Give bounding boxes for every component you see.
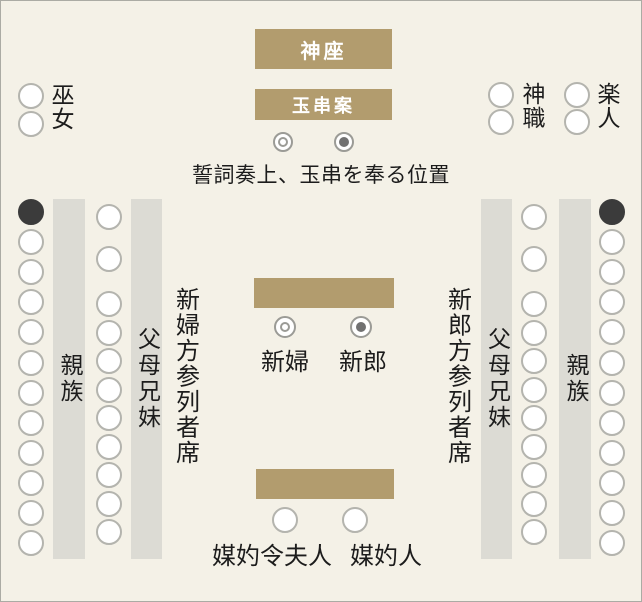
seat-matchmaker-wife (272, 507, 298, 533)
bride-position-marker (273, 132, 293, 152)
miko-label: 巫女 (43, 83, 77, 131)
seat-right-relatives (599, 229, 625, 255)
relatives-bar-left-label: 親族 (52, 353, 86, 405)
matchmaker-table (256, 469, 394, 499)
seat-right-parents (521, 291, 547, 317)
bride-marker (274, 316, 296, 338)
groom-label: 新郎 (339, 342, 387, 377)
parents-siblings-bar-right-label: 父母兄妹 (480, 327, 514, 431)
seat-right-relatives (599, 259, 625, 285)
tamagushi-table: 玉串案 (255, 89, 392, 120)
seat-right-relatives (599, 530, 625, 556)
groom-marker (350, 316, 372, 338)
matchmaker-wife-label: 媒妁令夫人 (212, 536, 332, 571)
seat-right-parents (521, 462, 547, 488)
seat-matchmaker (342, 507, 368, 533)
seat-left-parents (96, 519, 122, 545)
seat-right-relatives (599, 410, 625, 436)
seat-right-parents (521, 348, 547, 374)
seat-right-relatives (599, 500, 625, 526)
bride-side-title: 新婦方参列者席 (169, 287, 204, 466)
seat-left-parents (96, 405, 122, 431)
bride-label: 新婦 (261, 342, 309, 377)
relatives-bar-right: 親族 (559, 199, 591, 559)
seat-left-parents (96, 246, 122, 272)
seat-left-parents (96, 348, 122, 374)
seat-left-parents (96, 434, 122, 460)
kamiza-table: 神座 (255, 29, 392, 69)
relatives-bar-right-label: 親族 (558, 353, 592, 405)
seat-left-parents (96, 491, 122, 517)
seat-left-relatives (18, 350, 44, 376)
seat-right-parents (521, 320, 547, 346)
seat-left-relatives (18, 289, 44, 315)
seat-miko (18, 111, 44, 137)
seat-left-parents (96, 462, 122, 488)
seat-gakunin (564, 109, 590, 135)
groom-position-marker (334, 132, 354, 152)
parents-siblings-bar-right: 父母兄妹 (481, 199, 512, 559)
seat-left-parents (96, 377, 122, 403)
seat-left-relatives (18, 530, 44, 556)
parents-siblings-bar-left: 父母兄妹 (131, 199, 162, 559)
seat-shinshoku (488, 82, 514, 108)
seat-miko (18, 83, 44, 109)
groom-marker-inner-icon (356, 322, 366, 332)
seat-left-relatives (18, 470, 44, 496)
seat-left-relatives (18, 410, 44, 436)
seat-right-parents (521, 519, 547, 545)
seat-right-relatives (599, 440, 625, 466)
seat-left-relatives (18, 380, 44, 406)
seat-right-parents (521, 246, 547, 272)
groom-side-title: 新郎方参列者席 (441, 287, 476, 466)
seat-right-parents (521, 405, 547, 431)
bride-marker-inner-icon (280, 322, 290, 332)
seat-left-parents (96, 291, 122, 317)
shinshoku-label: 神職 (514, 82, 548, 130)
seat-left-relatives (18, 229, 44, 255)
seat-right-relatives (599, 289, 625, 315)
seat-right-relatives (599, 350, 625, 376)
seat-shinshoku (488, 109, 514, 135)
matchmaker-label: 媒妁人 (350, 536, 422, 571)
seat-right-relatives (599, 319, 625, 345)
relatives-bar-left: 親族 (53, 199, 85, 559)
seat-left-parents (96, 204, 122, 230)
seat-left-relatives (18, 500, 44, 526)
ceremony-table (254, 278, 394, 308)
seating-chart: 神座 玉串案 誓詞奏上、玉串を奉る位置 巫女 神職 楽人 親族 父母兄妹 父母兄… (0, 0, 642, 602)
groom-position-inner-icon (339, 137, 349, 147)
kamiza-label: 神座 (301, 35, 347, 64)
seat-right-parents (521, 377, 547, 403)
seat-left-relatives (18, 319, 44, 345)
seat-left-parents (96, 320, 122, 346)
seat-right-parents (521, 204, 547, 230)
bride-position-inner-icon (278, 137, 288, 147)
seat-right-relatives (599, 470, 625, 496)
seat-left-relatives (18, 199, 44, 225)
vow-caption: 誓詞奏上、玉串を奉る位置 (1, 159, 641, 189)
seat-left-relatives (18, 259, 44, 285)
gakunin-label: 楽人 (589, 82, 623, 130)
seat-right-parents (521, 434, 547, 460)
seat-right-parents (521, 491, 547, 517)
seat-left-relatives (18, 440, 44, 466)
seat-right-relatives (599, 199, 625, 225)
tamagushi-label: 玉串案 (292, 92, 355, 118)
seat-right-relatives (599, 380, 625, 406)
seat-gakunin (564, 82, 590, 108)
parents-siblings-bar-left-label: 父母兄妹 (130, 327, 164, 431)
